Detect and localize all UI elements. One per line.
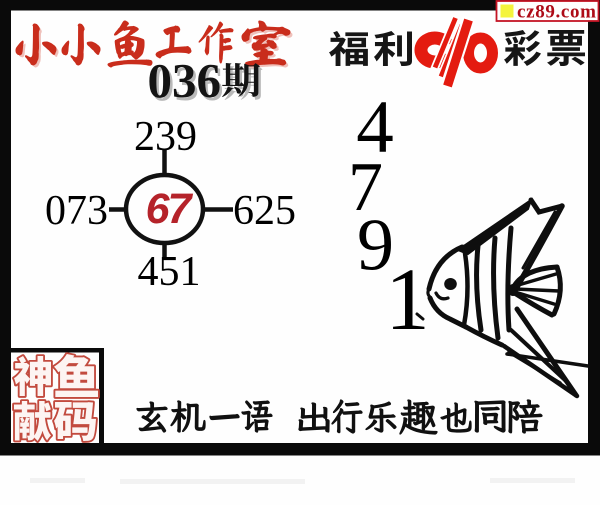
svg-text:073: 073 xyxy=(45,188,108,234)
svg-text:239: 239 xyxy=(134,114,197,160)
svg-text:625: 625 xyxy=(233,188,296,234)
svg-text:1: 1 xyxy=(385,251,430,349)
svg-text:cz89.com: cz89.com xyxy=(517,2,596,23)
svg-text:451: 451 xyxy=(138,249,201,295)
svg-text:036: 036 xyxy=(148,53,222,108)
svg-text:67: 67 xyxy=(146,185,194,233)
